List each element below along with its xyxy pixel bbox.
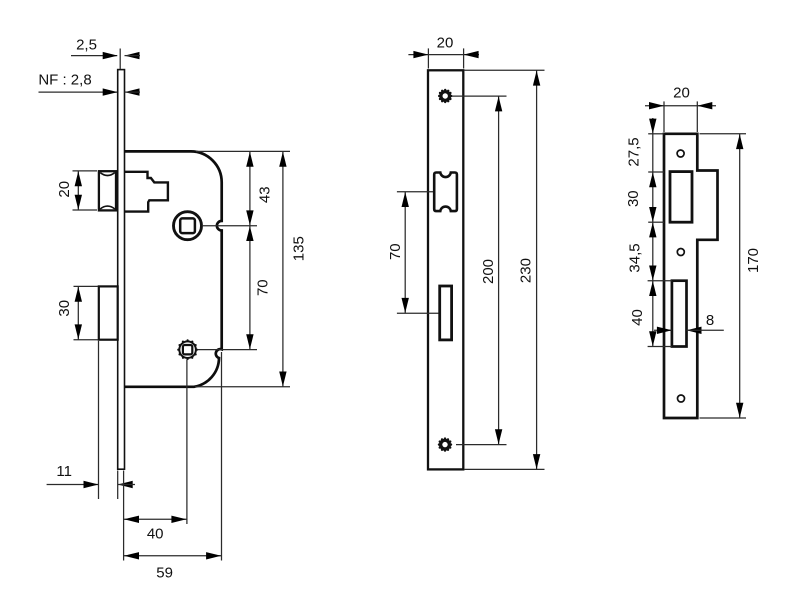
svg-text:2,5: 2,5 [76, 37, 97, 54]
svg-text:170: 170 [745, 248, 762, 273]
svg-text:59: 59 [156, 565, 173, 582]
svg-text:20: 20 [56, 181, 73, 198]
svg-text:30: 30 [625, 190, 642, 207]
svg-text:70: 70 [255, 279, 272, 296]
svg-text:20: 20 [673, 84, 690, 101]
svg-text:40: 40 [147, 525, 164, 542]
svg-text:11: 11 [56, 463, 72, 480]
svg-text:8: 8 [706, 312, 714, 329]
svg-text:34,5: 34,5 [626, 243, 643, 272]
svg-text:230: 230 [517, 258, 534, 283]
svg-text:135: 135 [290, 236, 307, 261]
svg-text:NF : 2,8: NF : 2,8 [38, 72, 91, 89]
svg-text:40: 40 [629, 309, 646, 326]
svg-text:43: 43 [256, 186, 273, 203]
svg-text:20: 20 [437, 34, 454, 51]
svg-text:70: 70 [387, 243, 404, 260]
svg-text:27,5: 27,5 [625, 137, 642, 166]
svg-text:30: 30 [56, 300, 73, 317]
svg-text:200: 200 [480, 259, 497, 284]
